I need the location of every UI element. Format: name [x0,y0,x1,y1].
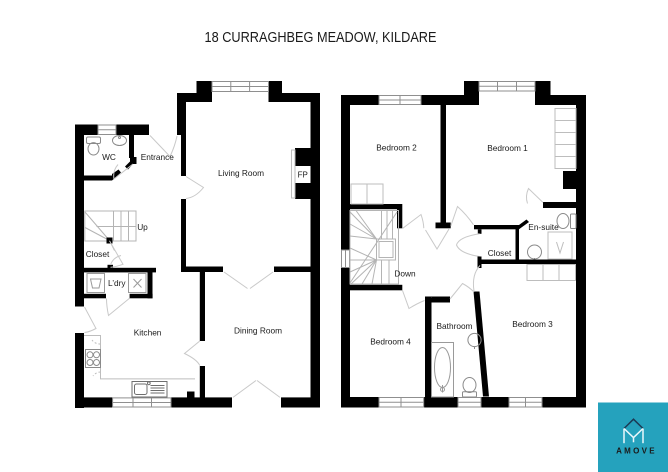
svg-text:AMOVE: AMOVE [616,447,657,456]
svg-text:Bedroom 1: Bedroom 1 [487,143,528,153]
svg-text:Bedroom 2: Bedroom 2 [376,143,417,153]
svg-text:Living Room: Living Room [218,168,264,178]
svg-text:Closet: Closet [488,248,512,258]
svg-text:Bathroom: Bathroom [437,321,473,331]
svg-text:Bedroom 4: Bedroom 4 [370,337,411,347]
svg-text:18 CURRAGHBEG MEADOW, KILDARE: 18 CURRAGHBEG MEADOW, KILDARE [205,29,437,46]
svg-text:Dining Room: Dining Room [234,326,282,336]
svg-text:Up: Up [137,222,148,232]
svg-text:En-suite: En-suite [528,222,559,232]
svg-text:Kitchen: Kitchen [134,328,162,338]
svg-text:Bedroom 3: Bedroom 3 [512,319,553,329]
svg-text:Down: Down [394,269,416,279]
svg-text:Entrance: Entrance [141,152,175,162]
svg-text:L’dry: L’dry [108,278,126,288]
svg-text:WC: WC [102,152,116,162]
svg-text:Closet: Closet [86,249,110,259]
svg-text:FP: FP [298,171,308,180]
